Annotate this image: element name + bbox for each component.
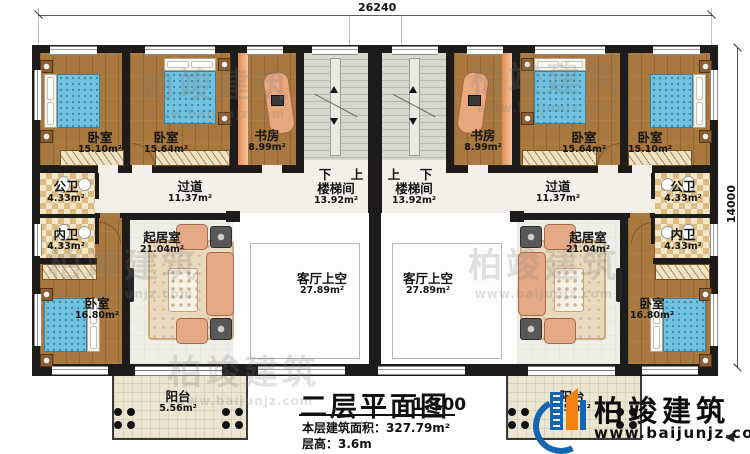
window-opening	[145, 46, 215, 55]
window-opening	[710, 224, 718, 256]
label-void-right: 客厅上空 27.89m²	[403, 272, 453, 296]
label-balcony-left: 阳台 5.56m²	[159, 390, 197, 414]
stair-direction-down: 下	[319, 164, 332, 183]
window-opening	[467, 46, 503, 55]
door-opening	[468, 165, 488, 173]
wall-segment	[40, 258, 97, 264]
side-table	[520, 318, 542, 340]
nightstand	[699, 130, 712, 143]
bed	[164, 58, 216, 124]
door-opening	[100, 213, 120, 220]
label-stairwell-right: 楼梯间 13.92m²	[392, 182, 436, 206]
wall-segment	[510, 211, 524, 222]
window-opening	[642, 366, 698, 375]
bed	[44, 74, 100, 128]
label-bedroom3-left: 卧室 16.80m²	[75, 297, 119, 321]
window-opening	[653, 46, 700, 55]
stair-arrow-icon	[330, 118, 338, 125]
label-private-bath-left: 内卫 4.33m²	[47, 228, 85, 252]
wall-segment	[651, 218, 655, 244]
label-private-bath-right: 内卫 4.33m²	[664, 228, 702, 252]
armchair	[544, 318, 576, 344]
coffee-table	[554, 268, 584, 312]
dimension-right-label: 14000	[725, 185, 738, 223]
tv	[128, 268, 134, 302]
computer-icon	[468, 95, 481, 106]
bed-mattress	[57, 74, 100, 128]
wardrobe	[655, 264, 710, 280]
logo-building-icon	[550, 392, 563, 430]
nightstand	[218, 112, 231, 125]
nightstand	[521, 58, 534, 71]
dimension-top-label: 26240	[358, 1, 396, 14]
balcony-column	[114, 408, 122, 416]
window-opening	[34, 224, 42, 256]
stair-direction-up: 上	[388, 164, 401, 183]
extension-line	[401, 15, 402, 45]
bed-pillows	[534, 58, 586, 71]
computer-icon	[271, 95, 284, 106]
window-opening	[535, 46, 605, 55]
bed	[534, 58, 586, 124]
balcony-door	[528, 366, 615, 376]
door-opening	[98, 165, 118, 173]
label-corridor-left: 过道 11.37m²	[168, 180, 212, 204]
wall-segment	[651, 173, 655, 199]
stair-arrow-icon	[409, 118, 417, 125]
study-closet-strip	[502, 53, 512, 165]
label-bedroom1-right: 卧室 15.10m²	[628, 131, 672, 155]
window-opening	[247, 46, 283, 55]
window-opening	[34, 294, 42, 346]
label-bedroom3-right: 卧室 16.80m²	[630, 297, 674, 321]
floor-plan-page: 26240 14000	[0, 0, 750, 454]
floor-height-text: 层高：3.6m	[302, 435, 372, 452]
window-opening	[710, 70, 718, 120]
label-living-right: 起居室 21.04m²	[566, 231, 610, 255]
window-opening	[34, 70, 42, 120]
bed-pillows	[164, 58, 216, 71]
label-public-bath-right: 公卫 4.33m²	[664, 180, 702, 204]
stair-direction-down: 下	[420, 164, 433, 183]
open-boundary	[238, 213, 369, 220]
window-opening	[52, 366, 108, 375]
window-opening	[710, 294, 718, 346]
void-outline	[392, 243, 502, 359]
wall-segment	[653, 258, 710, 264]
door-opening	[632, 165, 652, 173]
bed-mattress	[534, 71, 586, 124]
wall-segment	[226, 211, 240, 222]
sofa	[518, 252, 546, 316]
extension-line	[349, 15, 350, 45]
label-bedroom1-left: 卧室 15.10m²	[78, 131, 122, 155]
bed-pillows	[44, 74, 57, 128]
title-underline	[299, 414, 455, 416]
label-study-left: 书房 8.99m²	[248, 129, 286, 153]
wardrobe	[42, 264, 97, 280]
label-stairwell-left: 楼梯间 13.92m²	[314, 182, 358, 206]
door-opening	[262, 165, 282, 173]
side-table	[210, 226, 232, 248]
floor-area-text: 本层建筑面积：327.79m²	[302, 419, 450, 436]
wall-segment	[95, 218, 99, 244]
armchair	[176, 318, 208, 344]
coffee-table	[168, 268, 198, 312]
bed-mattress	[164, 71, 216, 124]
door-opening	[630, 213, 650, 220]
bed	[650, 74, 706, 128]
stair-arrow-icon	[330, 86, 338, 93]
open-boundary	[381, 213, 512, 220]
label-bedroom2-left: 卧室 15.64m²	[144, 131, 188, 155]
study-closet-strip	[238, 53, 248, 165]
nightstand	[218, 58, 231, 71]
wall-segment	[345, 364, 378, 376]
void-outline	[250, 243, 360, 359]
label-study-right: 书房 8.99m²	[464, 129, 502, 153]
window-opening	[312, 46, 358, 55]
side-table	[210, 318, 232, 340]
sofa	[206, 252, 234, 316]
window-opening	[392, 46, 438, 55]
balcony-column	[222, 408, 230, 416]
stair-direction-up: 上	[351, 164, 364, 183]
plan-scale: 1:100	[412, 395, 466, 415]
tv	[616, 268, 622, 302]
wall-segment	[95, 173, 99, 199]
window-opening	[258, 366, 345, 375]
nightstand	[521, 112, 534, 125]
stair-arrow-icon	[409, 86, 417, 93]
side-table	[520, 226, 542, 248]
balcony-column	[508, 408, 516, 416]
label-corridor-right: 过道 11.37m²	[536, 180, 580, 204]
label-living-left: 起居室 21.04m²	[140, 231, 184, 255]
label-void-left: 客厅上空 27.89m²	[297, 272, 347, 296]
label-public-bath-left: 公卫 4.33m²	[47, 180, 85, 204]
bed-mattress	[650, 74, 693, 128]
balcony-door	[135, 366, 222, 376]
window-opening	[378, 366, 465, 375]
nightstand	[40, 130, 53, 143]
bed-pillows	[693, 74, 706, 128]
nightstand	[699, 354, 712, 367]
logo-building-icon	[580, 400, 586, 430]
dimension-top-line	[38, 15, 712, 16]
window-opening	[50, 46, 97, 55]
label-bedroom2-right: 卧室 15.64m²	[562, 131, 606, 155]
